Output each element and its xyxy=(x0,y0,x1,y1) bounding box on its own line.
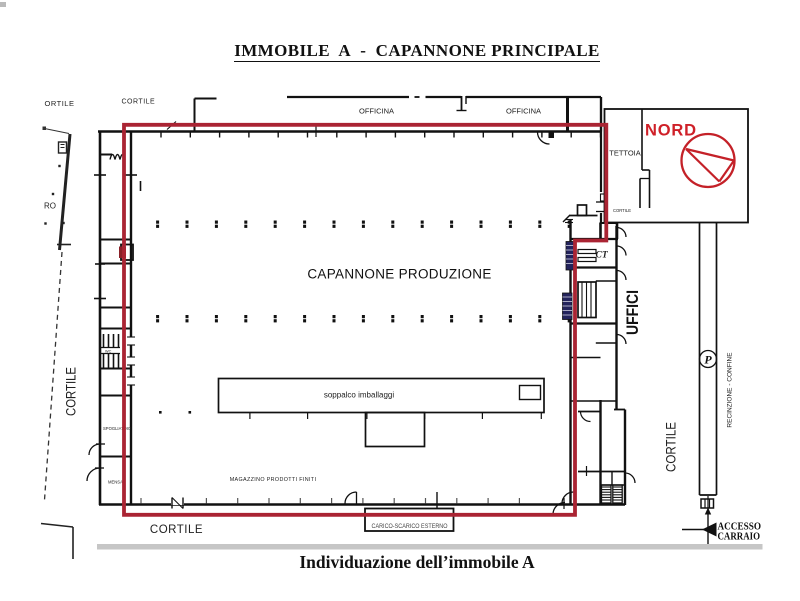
svg-text:TETTOIA: TETTOIA xyxy=(609,149,641,158)
svg-text:RECINZIONE - CONFINE: RECINZIONE - CONFINE xyxy=(727,352,734,428)
svg-text:soppalco imballaggi: soppalco imballaggi xyxy=(324,391,394,400)
svg-text:MAGAZZINO PRODOTTI FINITI: MAGAZZINO PRODOTTI FINITI xyxy=(230,477,317,483)
svg-text:MENSA: MENSA xyxy=(108,480,123,485)
svg-text:RO: RO xyxy=(44,202,56,211)
svg-text:CAPANNONE PRODUZIONE: CAPANNONE PRODUZIONE xyxy=(307,267,491,282)
svg-text:OFFICINA: OFFICINA xyxy=(506,107,541,116)
svg-text:WC: WC xyxy=(105,350,112,354)
svg-text:ORTILE: ORTILE xyxy=(45,99,75,108)
svg-text:CORTILE: CORTILE xyxy=(150,524,203,536)
svg-text:CORTILE: CORTILE xyxy=(613,208,631,213)
svg-text:CARRAIO: CARRAIO xyxy=(718,531,761,543)
svg-text:CORTILE: CORTILE xyxy=(122,99,156,106)
svg-text:SPOGLIATOIO: SPOGLIATOIO xyxy=(103,426,132,431)
svg-text:CT: CT xyxy=(596,251,609,261)
svg-text:P: P xyxy=(704,353,712,367)
svg-text:CORTILE: CORTILE xyxy=(663,422,679,472)
svg-text:NORD: NORD xyxy=(645,122,697,140)
svg-text:UFFICI: UFFICI xyxy=(624,290,642,335)
svg-text:CARICO-SCARICO ESTERNO: CARICO-SCARICO ESTERNO xyxy=(372,524,448,530)
svg-text:OFFICINA: OFFICINA xyxy=(359,107,394,116)
svg-text:CORTILE: CORTILE xyxy=(63,367,79,416)
